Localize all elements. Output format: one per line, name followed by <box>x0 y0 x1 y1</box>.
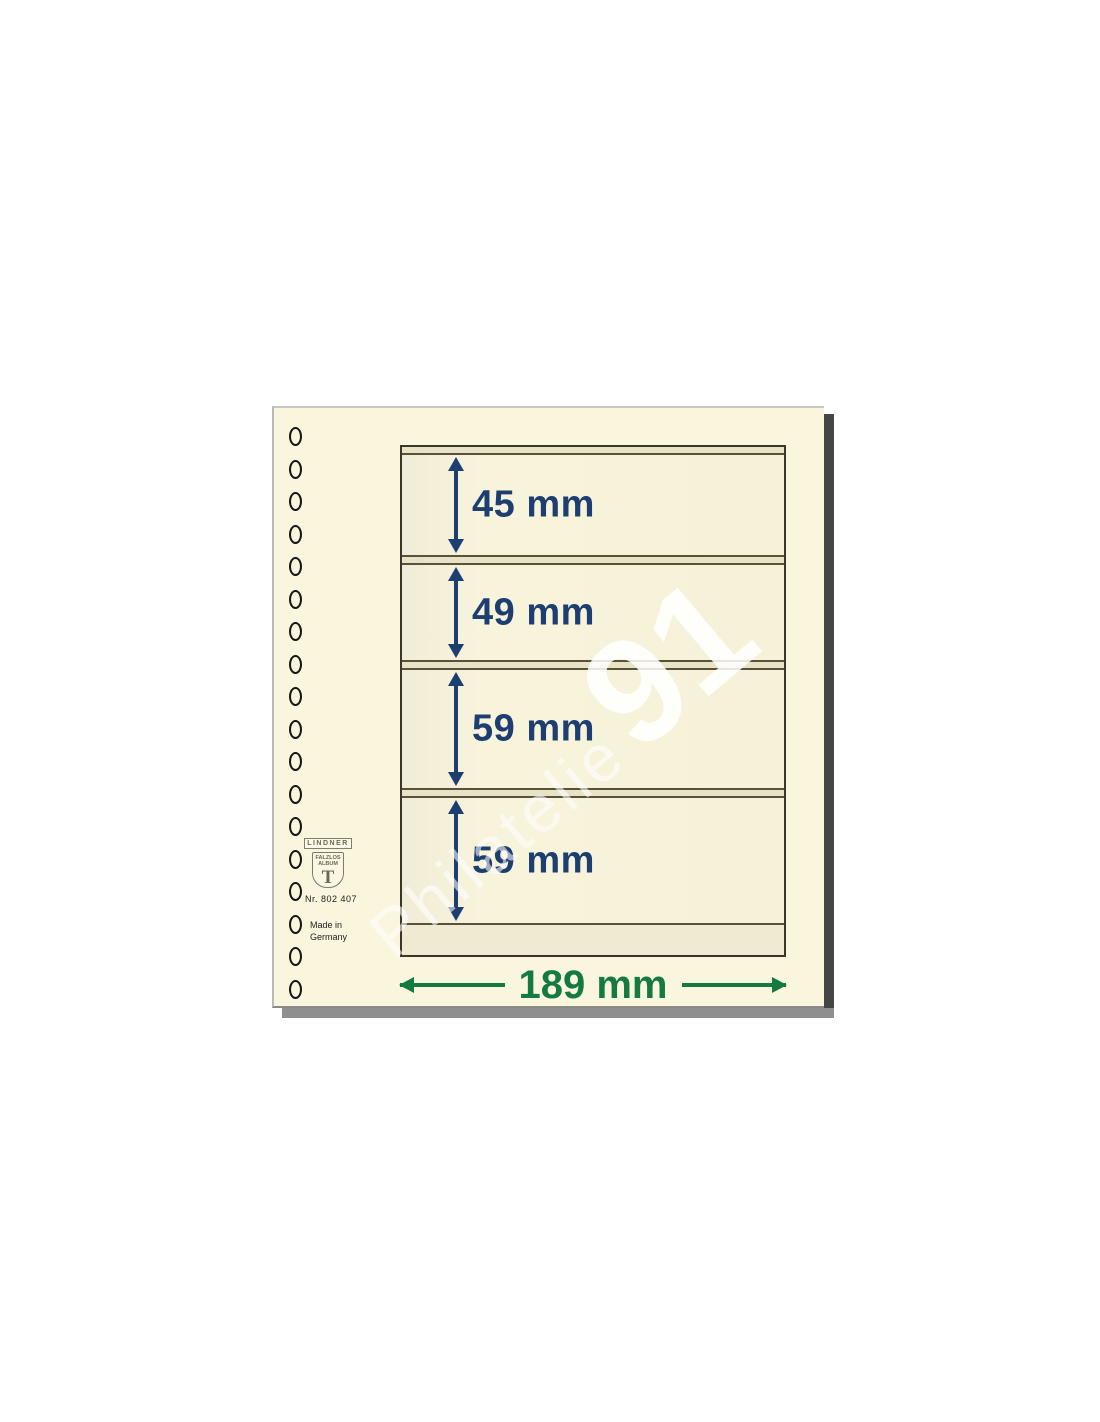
lindner-logo: LINDNER FALZLOS ALBUM T <box>304 832 352 888</box>
page-shadow-bottom <box>282 1008 834 1018</box>
pocket-height-label: 45 mm <box>472 484 595 527</box>
binder-hole <box>289 557 302 576</box>
binder-hole <box>289 590 302 609</box>
pocket-row-3: 59 mm <box>402 670 784 788</box>
product-screenshot: LINDNER FALZLOS ALBUM T Nr. 802 407 Made… <box>0 0 1100 1422</box>
pocket-height-label: 49 mm <box>472 591 595 634</box>
width-dimension: 189 mm <box>400 964 786 1006</box>
pocket-separator-strip <box>402 788 784 798</box>
binder-hole <box>289 915 302 934</box>
pocket-separator-strip <box>402 555 784 565</box>
shield-icon: FALZLOS ALBUM T <box>312 852 344 888</box>
binder-hole <box>289 687 302 706</box>
binder-hole <box>289 882 302 901</box>
right-arrow-line <box>682 983 787 987</box>
made-in-label: Made in Germany <box>310 920 347 943</box>
binder-hole <box>289 622 302 641</box>
brand-monogram: T <box>322 868 335 887</box>
pocket-row-1: 45 mm <box>402 455 784 555</box>
album-page: LINDNER FALZLOS ALBUM T Nr. 802 407 Made… <box>272 406 824 1008</box>
page-width-label: 189 mm <box>519 965 668 1005</box>
bottom-mounting-strip <box>402 923 784 955</box>
binder-hole <box>289 525 302 544</box>
binder-hole <box>289 655 302 674</box>
pocket-separator-strip <box>402 660 784 670</box>
vertical-dimension-arrow <box>454 470 458 540</box>
top-mounting-strip <box>402 447 784 455</box>
binder-hole <box>289 427 302 446</box>
left-arrow-line <box>400 983 505 987</box>
brand-name: LINDNER <box>304 838 352 849</box>
pocket-row-2: 49 mm <box>402 565 784 660</box>
binder-hole <box>289 980 302 999</box>
binder-hole <box>289 752 302 771</box>
pocket-grid: 45 mm 49 mm 59 mm 59 mm <box>400 445 786 957</box>
page-shadow-right <box>824 414 834 1008</box>
vertical-dimension-arrow <box>454 813 458 908</box>
pocket-row-4: 59 mm <box>402 798 784 923</box>
pocket-height-label: 59 mm <box>472 708 595 751</box>
binder-hole <box>289 720 302 739</box>
binder-hole <box>289 492 302 511</box>
pocket-height-label: 59 mm <box>472 839 595 882</box>
binder-hole <box>289 850 302 869</box>
vertical-dimension-arrow <box>454 685 458 773</box>
article-number: Nr. 802 407 <box>305 894 357 904</box>
binder-hole <box>289 947 302 966</box>
binder-holes <box>287 427 303 999</box>
binder-hole <box>289 785 302 804</box>
binder-hole <box>289 460 302 479</box>
shield-text: FALZLOS ALBUM <box>315 855 340 868</box>
vertical-dimension-arrow <box>454 580 458 645</box>
binder-hole <box>289 817 302 836</box>
